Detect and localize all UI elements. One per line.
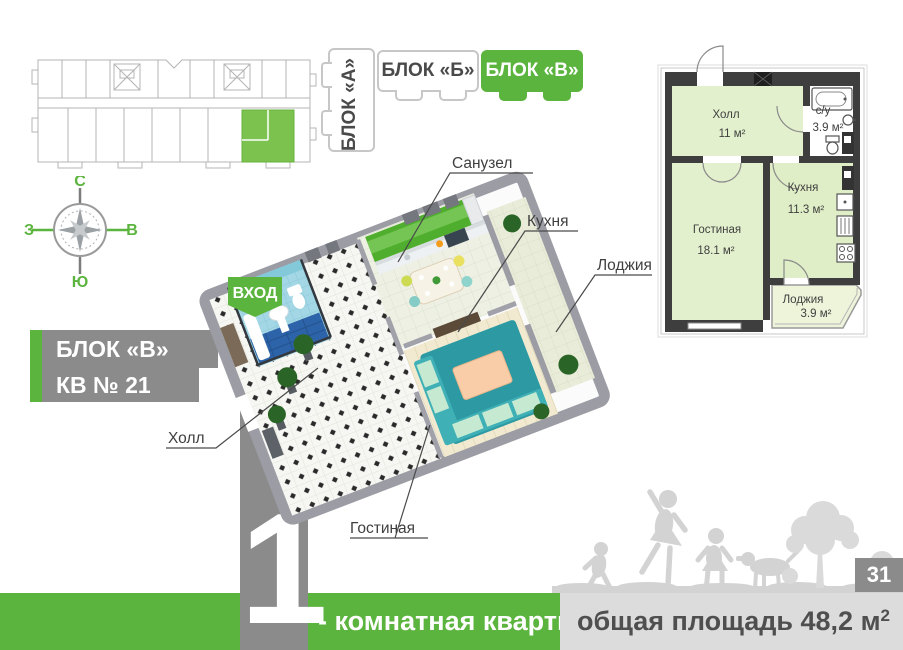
kitchen-zone bbox=[357, 193, 516, 348]
compass-east-label: В bbox=[126, 222, 138, 239]
plan-living-area: 18.1 м² bbox=[697, 245, 734, 257]
footer-gray-bar: общая площадь 48,2 м2 bbox=[560, 593, 903, 650]
plan-hall-area: 11 м² bbox=[719, 128, 746, 140]
label-hall: Холл bbox=[168, 430, 205, 447]
label-bathroom: Санузел bbox=[452, 155, 512, 172]
living-zone bbox=[404, 307, 559, 457]
rooms-count-column: 1 bbox=[240, 358, 308, 650]
people-silhouettes bbox=[552, 468, 903, 593]
mini-building-plan bbox=[28, 40, 320, 178]
apartment-badge: КВ № 21 bbox=[42, 368, 199, 402]
tab-notch bbox=[499, 90, 527, 101]
label-loggia: Лоджия bbox=[597, 257, 652, 274]
rooms-count: 1 bbox=[240, 490, 308, 648]
compass-west-label: З bbox=[24, 222, 34, 239]
label-living: Гостиная bbox=[350, 520, 415, 537]
page-number: 31 bbox=[855, 558, 903, 592]
tab-notch bbox=[543, 90, 571, 101]
block-badge-label: БЛОК «В» bbox=[56, 336, 169, 363]
mini-plan-highlighted-unit bbox=[242, 110, 294, 162]
compass-rose: С Ю З В bbox=[22, 176, 138, 288]
compass-north-label: С bbox=[74, 176, 86, 190]
compass-south-label: Ю bbox=[72, 274, 89, 288]
girl-jumping-silhouette bbox=[642, 490, 685, 585]
window-openings bbox=[305, 194, 460, 262]
tab-block-a-label: БЛОК «А» bbox=[339, 58, 361, 151]
entrance-badge-label: ВХОД bbox=[233, 285, 278, 302]
tab-notch bbox=[321, 62, 332, 88]
label-kitchen: Кухня bbox=[527, 213, 568, 230]
tab-block-v-label: БЛОК «В» bbox=[485, 60, 578, 81]
plan-room-living bbox=[672, 163, 763, 320]
tab-block-a[interactable]: БЛОК «А» bbox=[328, 48, 375, 152]
badge-green-stripe bbox=[30, 330, 42, 402]
plan-hall-name: Холл bbox=[712, 109, 739, 121]
brochure-page: С Ю З В БЛОК «А» БЛОК «Б» БЛОК «В» БЛОК … bbox=[0, 0, 903, 650]
plan-kitchen-area: 11.3 м² bbox=[788, 204, 825, 216]
child-silhouette bbox=[698, 528, 731, 590]
floor-plan-2d: Холл 11 м² с/у 3.9 м² Гостиная 18.1 м² К… bbox=[653, 42, 893, 342]
entrance-badge: ВХОД bbox=[228, 277, 282, 317]
plan-loggia-name: Лоджия bbox=[783, 294, 824, 306]
loggia-zone bbox=[484, 197, 595, 394]
tab-notch bbox=[395, 90, 423, 101]
boiler-icon bbox=[843, 115, 853, 125]
block-badge: БЛОК «В» bbox=[42, 330, 218, 368]
tab-notch bbox=[439, 90, 467, 101]
plan-kitchen-name: Кухня bbox=[788, 182, 819, 194]
toilet-icon bbox=[826, 136, 839, 154]
plan-wc-area: 3.9 м² bbox=[813, 122, 844, 134]
plan-window bbox=[688, 323, 741, 329]
tab-block-v[interactable]: БЛОК «В» bbox=[481, 50, 583, 92]
plan-room-loggia bbox=[772, 285, 861, 328]
tab-notch bbox=[321, 110, 332, 136]
plan-loggia-area: 3.9 м² bbox=[801, 308, 832, 320]
tab-block-b[interactable]: БЛОК «Б» bbox=[377, 50, 479, 92]
plan-living-name: Гостиная bbox=[693, 224, 741, 236]
bathroom-zone bbox=[228, 259, 331, 366]
apartment-badge-label: КВ № 21 bbox=[56, 372, 151, 399]
total-area-label: общая площадь 48,2 м bbox=[577, 606, 881, 636]
tab-block-b-label: БЛОК «Б» bbox=[382, 60, 475, 81]
total-area-sup: 2 bbox=[881, 606, 890, 625]
plan-wc-name: с/у bbox=[816, 105, 831, 117]
page-number-label: 31 bbox=[867, 562, 891, 587]
plan-room-hall bbox=[672, 86, 803, 156]
child-running-silhouette bbox=[585, 542, 611, 590]
